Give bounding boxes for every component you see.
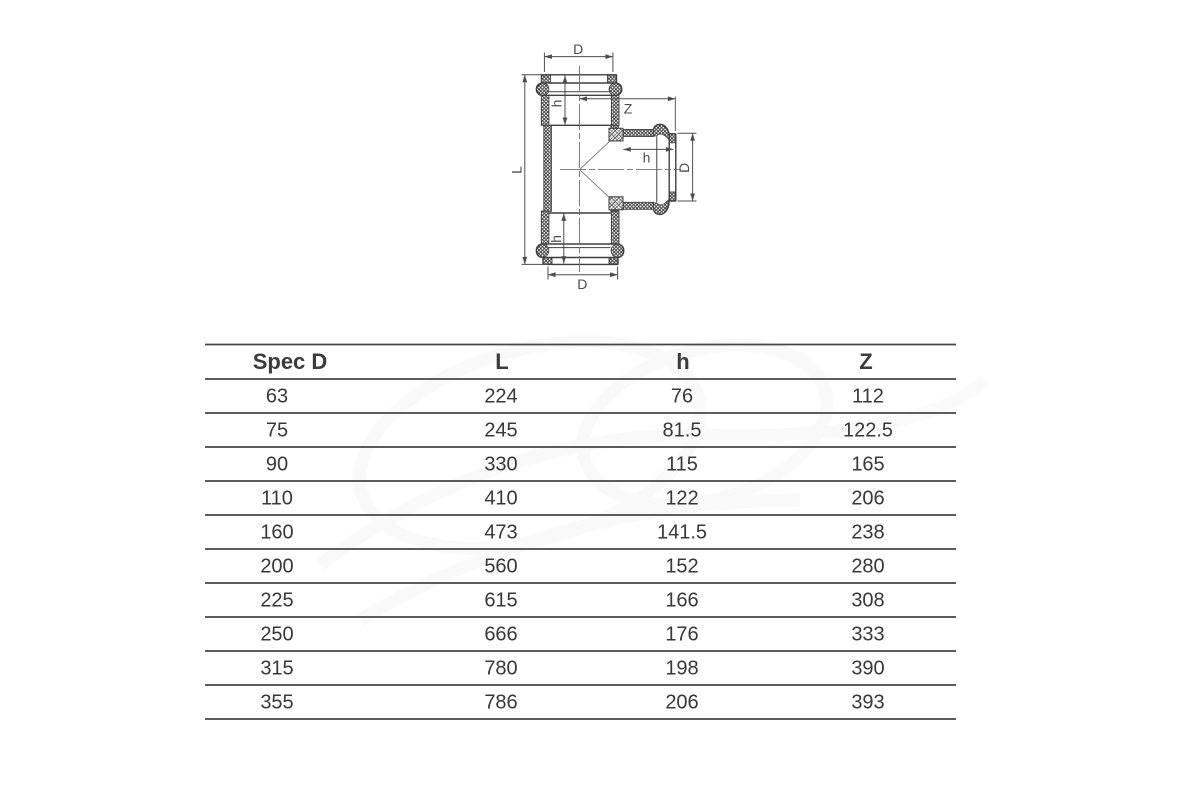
svg-text:166: 166 — [665, 590, 698, 612]
svg-text:560: 560 — [484, 556, 517, 578]
svg-text:h: h — [676, 349, 689, 374]
svg-text:780: 780 — [484, 658, 517, 680]
svg-text:176: 176 — [665, 624, 698, 646]
svg-text:473: 473 — [484, 522, 517, 544]
svg-text:160: 160 — [260, 522, 293, 544]
svg-text:390: 390 — [851, 658, 884, 680]
svg-text:h: h — [549, 100, 565, 108]
svg-text:Z: Z — [624, 101, 633, 117]
svg-text:198: 198 — [665, 658, 698, 680]
svg-text:141.5: 141.5 — [657, 522, 707, 544]
svg-text:122: 122 — [665, 488, 698, 510]
svg-text:122.5: 122.5 — [843, 420, 893, 442]
svg-text:76: 76 — [671, 386, 693, 408]
svg-text:D: D — [676, 163, 692, 173]
svg-text:308: 308 — [851, 590, 884, 612]
svg-text:238: 238 — [851, 522, 884, 544]
svg-text:81.5: 81.5 — [663, 420, 702, 442]
svg-text:110: 110 — [261, 488, 293, 510]
svg-text:63: 63 — [266, 386, 288, 408]
svg-text:L: L — [508, 166, 524, 174]
svg-text:h: h — [643, 150, 651, 166]
svg-text:75: 75 — [266, 420, 288, 442]
svg-text:355: 355 — [260, 692, 293, 714]
svg-text:615: 615 — [484, 590, 517, 612]
svg-text:Z: Z — [859, 349, 872, 374]
svg-text:h: h — [548, 235, 564, 243]
svg-text:225: 225 — [260, 590, 293, 612]
svg-text:D: D — [573, 41, 583, 57]
svg-text:245: 245 — [484, 420, 517, 442]
svg-text:330: 330 — [484, 454, 517, 476]
svg-text:152: 152 — [665, 556, 698, 578]
svg-text:410: 410 — [484, 488, 517, 510]
svg-text:200: 200 — [260, 556, 293, 578]
svg-text:224: 224 — [484, 386, 517, 408]
svg-text:666: 666 — [484, 624, 517, 646]
svg-text:250: 250 — [260, 624, 293, 646]
svg-text:112: 112 — [852, 386, 884, 408]
svg-text:206: 206 — [851, 488, 884, 510]
svg-text:115: 115 — [666, 454, 698, 476]
svg-text:315: 315 — [260, 658, 293, 680]
svg-text:165: 165 — [851, 454, 884, 476]
svg-text:393: 393 — [851, 692, 884, 714]
svg-text:Spec D: Spec D — [253, 349, 328, 374]
svg-text:206: 206 — [665, 692, 698, 714]
svg-text:280: 280 — [851, 556, 884, 578]
svg-text:90: 90 — [266, 454, 288, 476]
svg-text:786: 786 — [484, 692, 517, 714]
svg-text:L: L — [495, 349, 508, 374]
svg-text:333: 333 — [851, 624, 884, 646]
svg-text:D: D — [577, 276, 587, 292]
